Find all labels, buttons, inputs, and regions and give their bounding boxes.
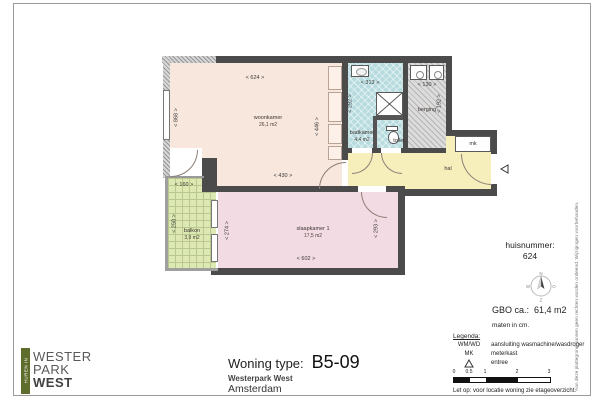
balkon-railing-left (165, 178, 168, 271)
washbasin-bowl (356, 68, 367, 76)
note-label: Let op: (453, 388, 471, 394)
wall-badkamer-berging (403, 63, 408, 148)
dim-woonkamer-bottom: < 430 > (268, 173, 298, 180)
label-woonkamer-name: woonkamer (238, 115, 298, 122)
wall-top (216, 56, 452, 63)
label-balkon-name: balkon (167, 228, 217, 235)
scale-bar-track (453, 377, 551, 383)
woning-type-value: B5-09 (312, 352, 360, 373)
legend-key-wmwd: WM/WD (451, 342, 487, 348)
entree-triangle-icon (464, 359, 474, 368)
dim-slaapkamer-left: < 274 > (225, 216, 232, 246)
kitchen-cabinet-2 (328, 92, 342, 122)
dim-badkamer-height: < 292 > (348, 89, 355, 119)
wall-toilet-top (373, 116, 403, 120)
label-woonkamer-area: 26,1 m2 (238, 122, 298, 129)
washing-machine-icon (410, 65, 427, 80)
wall-top-window (162, 56, 216, 63)
scale-tick-1: 1 (484, 369, 487, 375)
scale-seg-2 (470, 378, 486, 382)
legend-title: Legenda: (453, 333, 480, 340)
window-left (163, 90, 170, 140)
label-slaapkamer-name: slaapkamer 1 (283, 226, 343, 233)
scale-tick-05: 0.5 (466, 369, 473, 375)
scale-tick-3: 3 (548, 369, 551, 375)
huisnummer-block: huisnummer: 624 (490, 240, 570, 262)
dim-slaapkamer-right: < 293 > (374, 214, 381, 244)
scale-bar: 0 0.5 1 2 3 (453, 369, 563, 385)
dim-slaapkamer-bottom: < 602 > (291, 256, 321, 263)
floorplan-page: { "title_block": { "type_label": "Woning… (0, 0, 600, 400)
label-badkamer-name: badkamer (338, 130, 386, 137)
dim-woonkamer-right: < 446 > (315, 112, 322, 142)
label-balkon-area: 3,9 m2 (167, 235, 217, 242)
legend-val-mk: meterkast (491, 351, 517, 357)
wall-slaapkamer-bottom (211, 268, 405, 275)
compass-e: O (552, 284, 556, 289)
city-name: Amsterdam (228, 383, 282, 395)
wall-right-upper (491, 136, 497, 154)
scale-seg-1 (454, 378, 470, 382)
scale-seg-4 (518, 378, 550, 382)
compass-icon: N O Z W (526, 270, 556, 302)
dim-badkamer-width: < 313 > (355, 80, 385, 87)
label-slaapkamer: slaapkamer 1 17,5 m2 (283, 226, 343, 240)
kitchen-cabinet-4 (328, 146, 342, 160)
huisnummer-label: huisnummer: (490, 240, 570, 251)
label-hal-name: hal (433, 166, 463, 173)
huisnummer-value: 624 (490, 251, 570, 262)
label-hal: hal (433, 166, 463, 173)
compass-n: N (539, 271, 542, 276)
washbasin-icon (351, 65, 369, 77)
compass-w: W (526, 284, 531, 289)
units-text: maten in cm. (492, 322, 529, 329)
label-berging: berging (407, 107, 447, 114)
label-berging-name: berging (407, 107, 447, 114)
legend-val-wmwd: aansluiting wasmachine/wasdroger (491, 342, 584, 348)
wall-slaapkamer-right (398, 186, 405, 275)
note-text: voor locatie woning zie etageoverzicht. (473, 388, 576, 394)
mk-label: mk (469, 141, 476, 147)
disclaimer-vertical: Aan deze plattegrond kunnen geen rechten… (575, 176, 580, 391)
kitchen-cabinet-1 (328, 66, 342, 90)
mk-closet: mk (455, 136, 491, 152)
scale-seg-3 (486, 378, 518, 382)
legend-key-mk: MK (451, 351, 487, 357)
dryer-door (434, 71, 442, 79)
dim-balkon-width: < 160 > (169, 182, 199, 189)
dim-woonkamer-top: < 624 > (240, 75, 270, 82)
label-balkon: balkon 3,9 m2 (167, 228, 217, 242)
label-slaapkamer-area: 17,5 m2 (283, 233, 343, 240)
note-line: Let op: voor locatie woning zie etageove… (453, 388, 576, 394)
dim-woonkamer-left: < 868 > (174, 103, 181, 133)
scale-tick-0: 0 (453, 369, 456, 375)
label-woonkamer: woonkamer 26,1 m2 (238, 115, 298, 129)
project-name: Westerpark West (228, 374, 293, 383)
logo-west: WEST (33, 377, 73, 389)
label-badkamer: badkamer 4,4 m2 (338, 130, 386, 144)
scale-tick-2: 2 (516, 369, 519, 375)
wall-berging-right (446, 56, 452, 136)
logo-vertical-text: HUREN IN (24, 349, 29, 393)
dim-berging-height: < 192 > (437, 89, 444, 119)
title-block: Woning type: B5-09 (228, 352, 360, 373)
woning-type-label: Woning type: (228, 356, 304, 371)
legend-val-entree: entree (491, 360, 508, 366)
label-badkamer-area: 4,4 m2 (338, 137, 386, 144)
gbo-text: GBO ca.: 61,4 m2 (492, 305, 567, 315)
compass-s: Z (540, 298, 543, 303)
label-toilet: toilet (384, 138, 414, 145)
washing-machine-door (416, 71, 424, 79)
shower-icon (376, 92, 403, 116)
dryer-icon (429, 65, 444, 80)
entree-arrow-icon (500, 164, 509, 174)
label-toilet-name: toilet (384, 138, 414, 145)
window-slaapkamer-1 (211, 200, 218, 228)
wall-hal-bottom (398, 189, 497, 196)
balkon-railing-bottom (165, 268, 218, 271)
wall-corner-block (202, 158, 217, 192)
